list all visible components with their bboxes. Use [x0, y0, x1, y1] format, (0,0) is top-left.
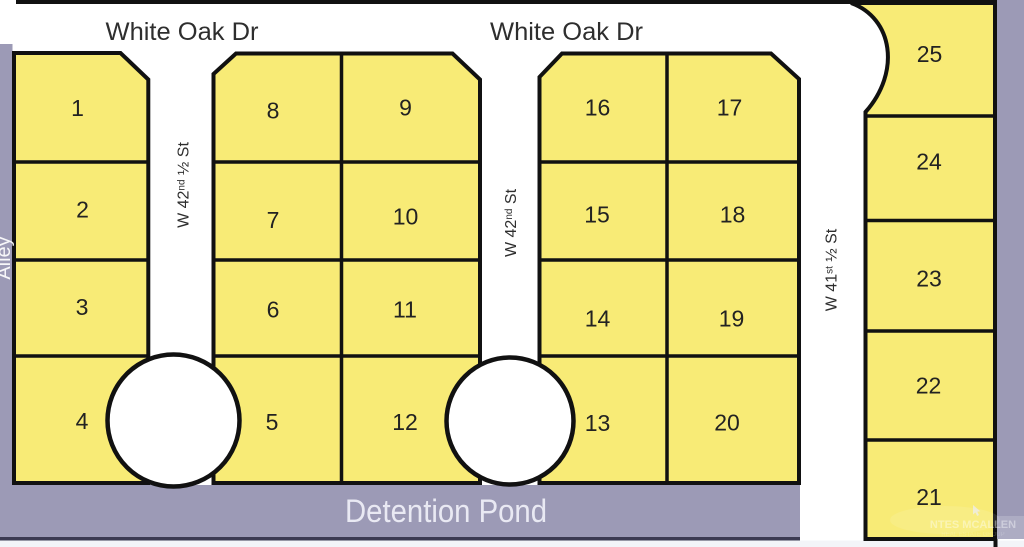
svg-text:Alley: Alley	[0, 236, 15, 279]
svg-text:23: 23	[916, 266, 942, 292]
svg-text:White Oak Dr: White Oak Dr	[490, 18, 643, 46]
svg-text:22: 22	[916, 373, 942, 399]
svg-text:5: 5	[266, 409, 279, 435]
svg-text:18: 18	[720, 202, 746, 228]
svg-text:NTES MCALLEN: NTES MCALLEN	[930, 519, 1016, 531]
svg-text:1: 1	[71, 95, 84, 121]
svg-text:7: 7	[267, 207, 280, 233]
svg-text:White Oak Dr: White Oak Dr	[106, 18, 259, 46]
svg-text:9: 9	[399, 95, 412, 121]
svg-text:19: 19	[719, 306, 745, 332]
svg-text:10: 10	[393, 204, 419, 230]
svg-text:12: 12	[392, 409, 418, 435]
svg-text:3: 3	[76, 294, 89, 320]
svg-text:6: 6	[267, 297, 280, 323]
svg-text:REAL ESTATE GROUP: REAL ESTATE GROUP	[941, 532, 1004, 538]
svg-text:8: 8	[267, 98, 280, 124]
svg-text:24: 24	[916, 149, 942, 175]
svg-text:4: 4	[76, 408, 89, 434]
svg-text:Detention Pond: Detention Pond	[345, 493, 547, 529]
svg-text:20: 20	[714, 410, 740, 436]
svg-text:2: 2	[76, 197, 89, 223]
svg-text:W 42nd St: W 42nd St	[503, 188, 520, 257]
svg-text:21: 21	[916, 484, 942, 510]
svg-text:17: 17	[717, 95, 743, 121]
svg-text:15: 15	[584, 202, 610, 228]
svg-text:14: 14	[585, 306, 611, 332]
svg-text:13: 13	[585, 410, 611, 436]
svg-text:11: 11	[393, 297, 417, 323]
svg-text:16: 16	[585, 95, 611, 121]
svg-text:25: 25	[917, 41, 943, 67]
